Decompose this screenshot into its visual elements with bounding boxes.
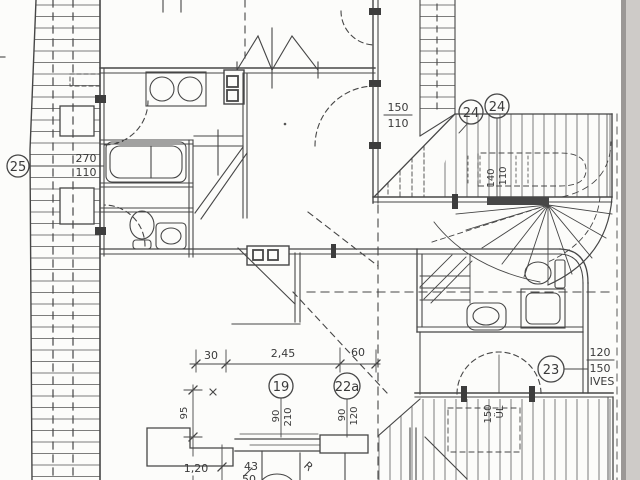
stairwell	[194, 130, 247, 219]
toilet	[525, 260, 565, 288]
room-marker-25: 25	[10, 160, 27, 175]
room-marker-24a: 24	[463, 106, 480, 121]
roof-line	[308, 212, 378, 266]
chimney	[247, 246, 289, 265]
dim-balcony-150: 150	[483, 404, 494, 423]
left-roof-strip	[0, 0, 100, 480]
bathtub	[106, 142, 186, 182]
door-arc	[315, 86, 375, 146]
dim-50: 50	[242, 473, 256, 480]
dim-vert-120: 1,20	[184, 462, 209, 475]
dim-chain-60: 60	[351, 346, 365, 359]
right-bathroom	[417, 249, 588, 394]
partial-circle-mark	[260, 474, 294, 480]
room-marker-22a: 22a	[335, 380, 360, 395]
dim-roof-window-height: 110	[498, 166, 509, 185]
washbasin	[156, 223, 186, 249]
window-symbol	[237, 28, 318, 88]
dim-balcony-note: ÜL	[493, 405, 506, 418]
dim-door19-width: 90	[271, 410, 282, 423]
dim-center-window-width: 150	[388, 101, 409, 114]
room-marker-19: 19	[273, 380, 290, 395]
shower-tray	[521, 289, 565, 328]
door-arc	[341, 11, 375, 45]
dim-vert-95: 95	[179, 407, 190, 420]
dim-chain-245: 2,45	[271, 347, 296, 360]
dim-door19-height: 210	[283, 407, 294, 426]
room-marker-24b: 24	[489, 100, 506, 115]
radius-mark: R	[301, 459, 316, 474]
dim-roof-window-width: 140	[486, 168, 497, 187]
roof-window	[60, 106, 94, 136]
scan-edge	[621, 0, 640, 480]
duct-hatch	[420, 255, 472, 303]
dim-right-door-note: IVES	[590, 375, 615, 388]
dim-left-window-width: 270	[76, 152, 97, 165]
roof-window	[60, 188, 94, 224]
dim-chain-30: 30	[204, 349, 218, 362]
roof-line	[293, 292, 387, 393]
dim-43: 43	[244, 460, 258, 473]
double-sink-vanity	[146, 72, 206, 106]
scanned-floor-plan: 25 24 24 23 19 22a 270 110 150 110 140 1…	[0, 0, 640, 480]
room-marker-23: 23	[543, 363, 560, 378]
dim-center-window-height: 110	[388, 117, 409, 130]
dim-right-door-width: 120	[590, 346, 611, 359]
floor-plan-drawing: 25 24 24 23 19 22a 270 110 150 110 140 1…	[0, 0, 640, 480]
toilet	[130, 211, 154, 249]
winder-staircase	[373, 194, 612, 285]
dim-left-window-height: 110	[76, 166, 97, 179]
washbasin	[467, 303, 506, 330]
door-arc	[104, 101, 148, 145]
chimney	[224, 70, 244, 104]
dim-door22a-width: 90	[337, 409, 348, 422]
left-rooms	[95, 68, 247, 257]
dim-right-door-height: 150	[590, 362, 611, 375]
dim-door22a-height: 120	[349, 406, 360, 425]
